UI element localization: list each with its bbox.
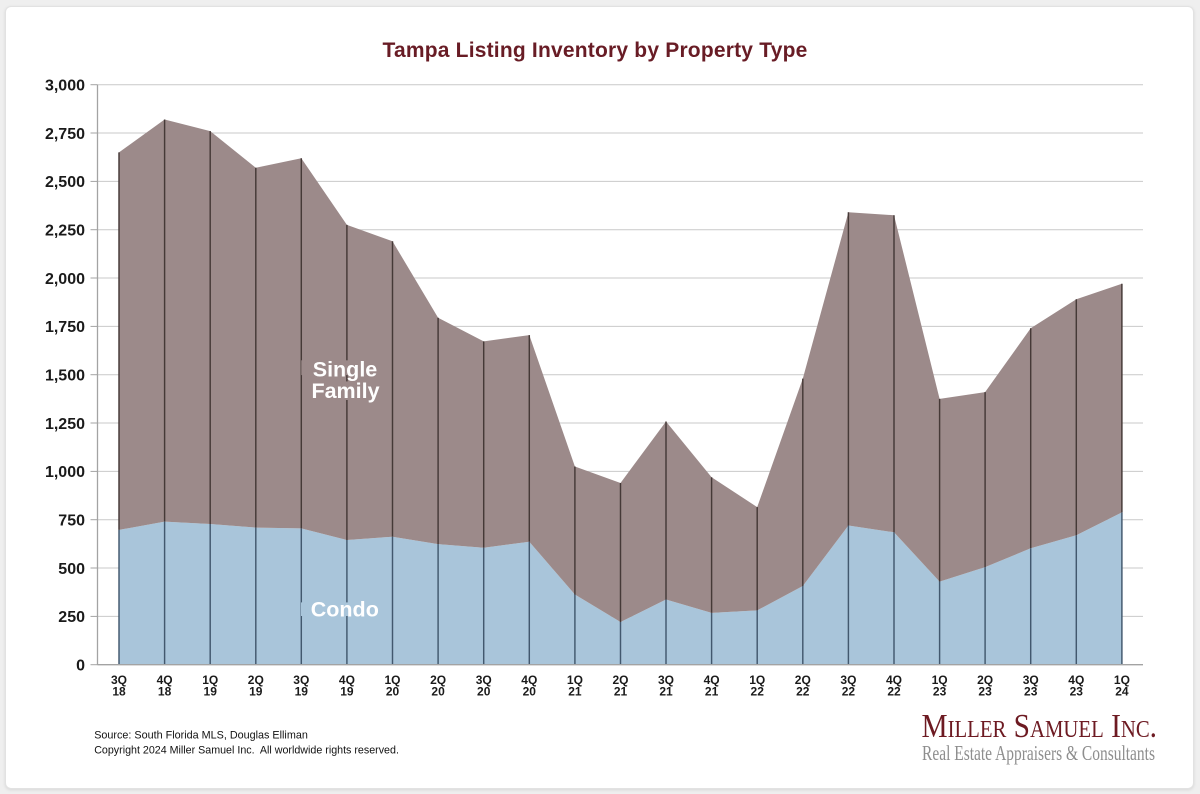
svg-text:21: 21 bbox=[705, 684, 719, 698]
svg-text:22: 22 bbox=[842, 684, 856, 698]
svg-text:Source: South Florida MLS, Dou: Source: South Florida MLS, Douglas Ellim… bbox=[94, 730, 308, 742]
svg-text:1,250: 1,250 bbox=[45, 416, 85, 433]
svg-text:Family: Family bbox=[311, 379, 379, 403]
svg-text:3,000: 3,000 bbox=[45, 78, 85, 95]
svg-text:19: 19 bbox=[204, 684, 218, 698]
svg-text:Condo: Condo bbox=[311, 598, 379, 622]
svg-text:Single: Single bbox=[313, 357, 378, 381]
svg-text:Real Estate Appraisers & Consu: Real Estate Appraisers & Consultants bbox=[922, 741, 1155, 765]
svg-text:2,250: 2,250 bbox=[45, 223, 85, 240]
svg-text:250: 250 bbox=[58, 609, 85, 626]
svg-text:1,000: 1,000 bbox=[45, 464, 85, 481]
svg-text:21: 21 bbox=[614, 684, 628, 698]
svg-text:2,500: 2,500 bbox=[45, 174, 85, 191]
svg-text:23: 23 bbox=[933, 684, 947, 698]
svg-text:20: 20 bbox=[523, 684, 537, 698]
svg-text:18: 18 bbox=[158, 684, 172, 698]
svg-text:21: 21 bbox=[568, 684, 582, 698]
svg-text:2,000: 2,000 bbox=[45, 271, 85, 288]
svg-text:23: 23 bbox=[978, 684, 992, 698]
svg-text:0: 0 bbox=[76, 658, 85, 675]
svg-text:1,500: 1,500 bbox=[45, 368, 85, 385]
svg-text:22: 22 bbox=[796, 684, 810, 698]
svg-text:2,750: 2,750 bbox=[45, 126, 85, 143]
svg-text:500: 500 bbox=[58, 561, 85, 578]
svg-text:21: 21 bbox=[659, 684, 673, 698]
svg-text:20: 20 bbox=[477, 684, 491, 698]
svg-text:19: 19 bbox=[295, 684, 309, 698]
svg-text:24: 24 bbox=[1115, 684, 1129, 698]
svg-text:20: 20 bbox=[386, 684, 400, 698]
svg-text:19: 19 bbox=[340, 684, 354, 698]
svg-text:18: 18 bbox=[112, 684, 126, 698]
svg-text:20: 20 bbox=[431, 684, 445, 698]
svg-text:22: 22 bbox=[751, 684, 765, 698]
svg-text:19: 19 bbox=[249, 684, 263, 698]
svg-text:Tampa Listing Inventory by Pro: Tampa Listing Inventory by Property Type bbox=[383, 39, 808, 62]
svg-text:Miller Samuel Inc.: Miller Samuel Inc. bbox=[922, 708, 1158, 745]
svg-text:23: 23 bbox=[1070, 684, 1084, 698]
svg-text:Copyright 2024 Miller Samuel I: Copyright 2024 Miller Samuel Inc. All wo… bbox=[94, 745, 399, 757]
svg-text:23: 23 bbox=[1024, 684, 1038, 698]
svg-text:1,750: 1,750 bbox=[45, 319, 85, 336]
svg-text:750: 750 bbox=[58, 513, 85, 530]
svg-text:22: 22 bbox=[887, 684, 901, 698]
